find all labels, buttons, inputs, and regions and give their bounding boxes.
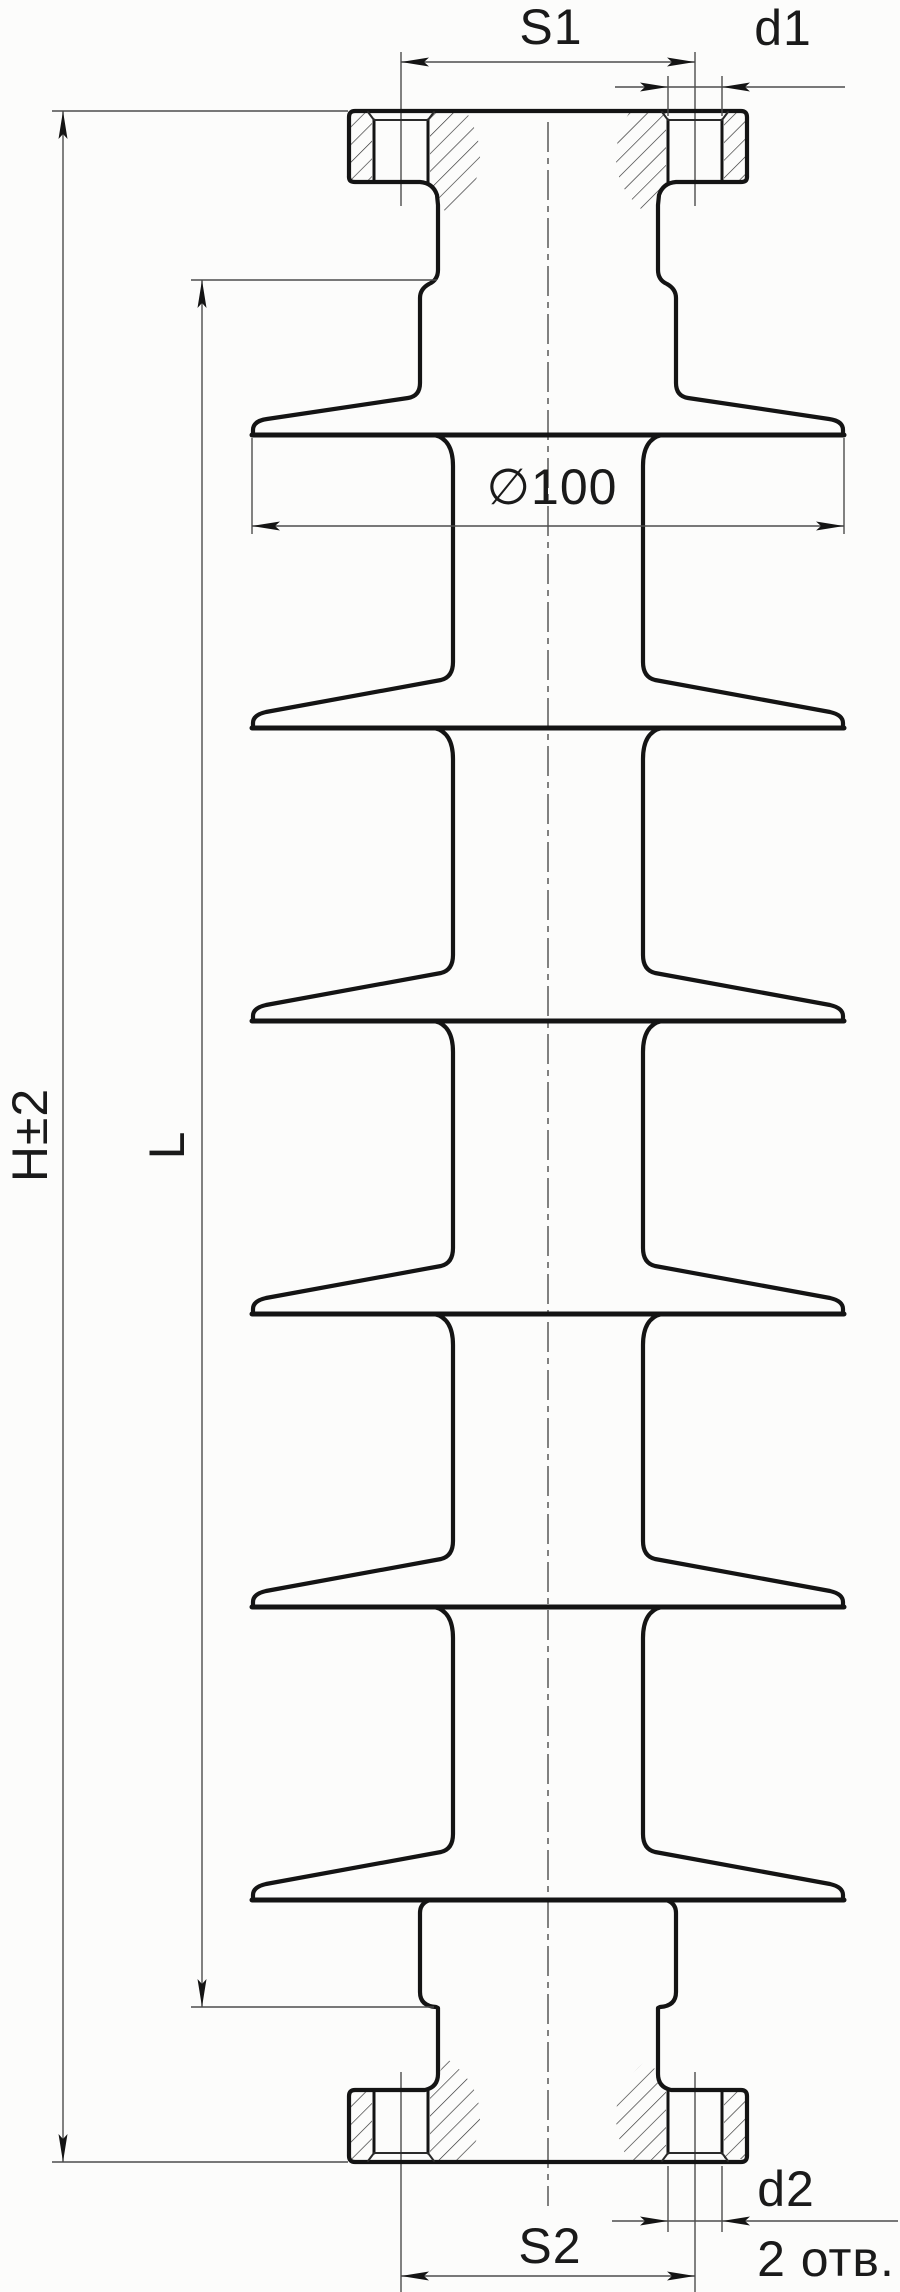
top-fitting-right-profile xyxy=(658,177,843,435)
trunk-shed-6-right xyxy=(643,1607,843,1900)
s1-label: S1 xyxy=(519,0,582,55)
centerlines xyxy=(401,52,695,2292)
trunk-shed-4-right xyxy=(643,1021,843,1314)
d1-label: d1 xyxy=(754,0,812,56)
dimension-l: L xyxy=(139,280,437,2007)
dimension-s1: S1 xyxy=(401,0,695,67)
insulator-technical-drawing: S1 d1 ∅100 H±2 L xyxy=(0,0,900,2292)
trunk-shed-3-left xyxy=(253,728,453,1021)
bottom-flange-hatch-right xyxy=(724,2091,746,2159)
trunk-shed-5-left xyxy=(253,1314,453,1607)
dimension-d1: d1 xyxy=(615,0,845,116)
l-label: L xyxy=(139,1131,195,1160)
dimension-d2: d2 2 отв. xyxy=(612,2161,898,2287)
trunk-shed-5-right xyxy=(643,1314,843,1607)
drawing-sheet: S1 d1 ∅100 H±2 L xyxy=(0,0,900,2292)
top-flange-hatch-left xyxy=(350,113,372,181)
top-flange-hatch-right xyxy=(724,113,746,181)
d2-label: d2 xyxy=(757,2161,815,2217)
trunk-shed-4-left xyxy=(253,1021,453,1314)
shed-diameter-label: ∅100 xyxy=(487,459,618,515)
holes-count-note: 2 отв. xyxy=(757,2231,895,2287)
h-label: H±2 xyxy=(2,1088,58,1182)
trunk-shed-2-right xyxy=(643,435,843,728)
trunk-shed-6-left xyxy=(253,1607,453,1900)
bottom-flange-hatch-left xyxy=(350,2091,372,2159)
trunk-shed-3-right xyxy=(643,728,843,1021)
top-fitting-left-profile xyxy=(253,177,438,435)
dimension-s2: S2 xyxy=(401,2218,695,2281)
trunk-shed-2-left xyxy=(253,435,453,728)
s2-label: S2 xyxy=(518,2218,581,2274)
